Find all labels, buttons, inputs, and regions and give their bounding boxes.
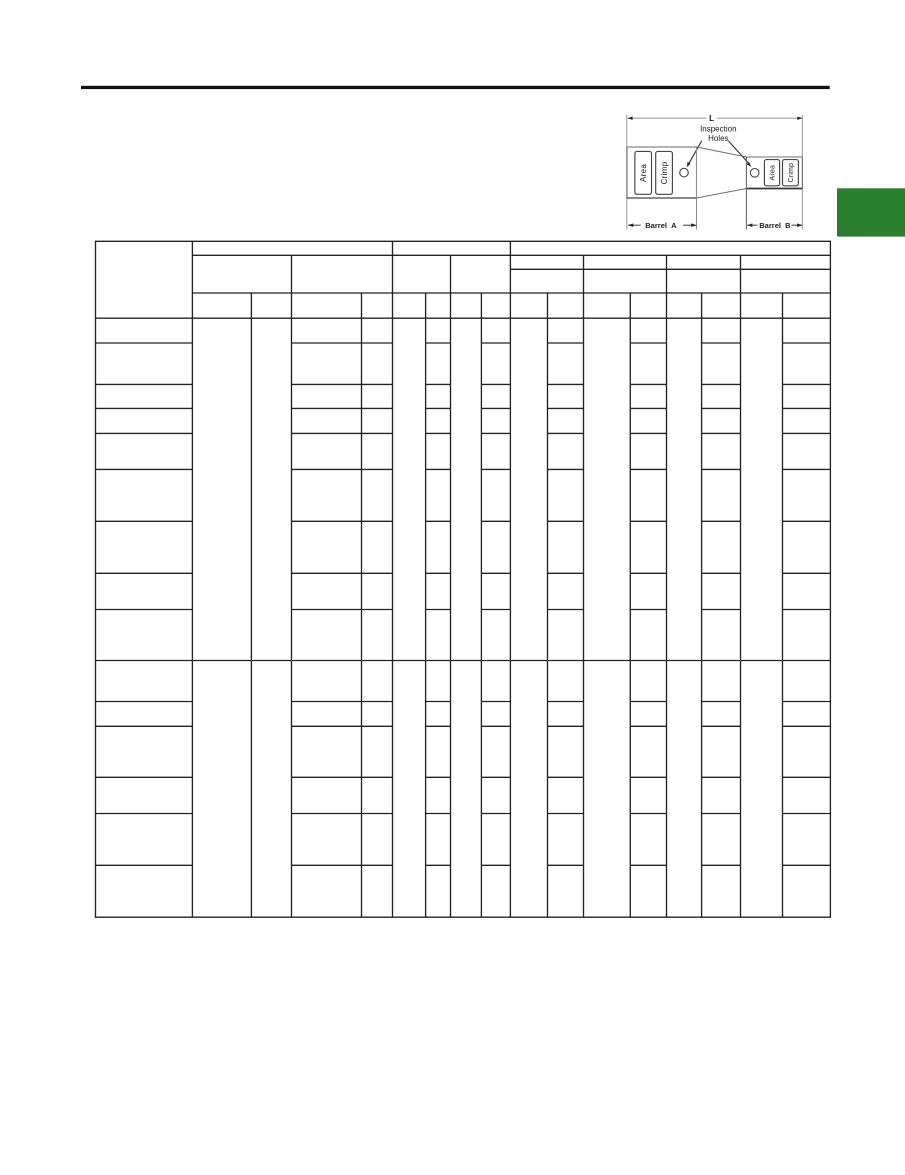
- svg-text:Barrel B: Barrel B: [759, 221, 791, 230]
- svg-text:Holes: Holes: [708, 134, 728, 143]
- svg-text:Area: Area: [639, 164, 648, 182]
- svg-text:Barrel A: Barrel A: [645, 221, 677, 230]
- svg-text:L: L: [709, 114, 714, 123]
- svg-text:Area: Area: [770, 165, 777, 181]
- svg-text:Inspection: Inspection: [700, 125, 736, 134]
- svg-text:Crimp: Crimp: [788, 163, 795, 183]
- svg-text:Crimp: Crimp: [660, 161, 669, 184]
